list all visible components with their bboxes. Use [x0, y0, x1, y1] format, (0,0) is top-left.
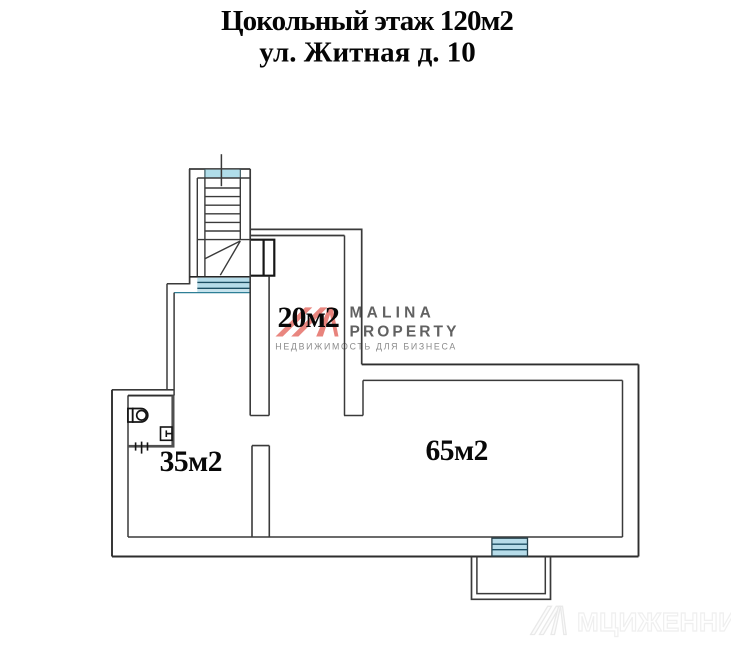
- svg-text:65м2: 65м2: [426, 435, 488, 467]
- svg-text:ул. Житная д. 10: ул. Житная д. 10: [259, 36, 476, 68]
- svg-text:20м2: 20м2: [277, 301, 338, 334]
- svg-text:PROPERTY: PROPERTY: [350, 324, 460, 341]
- svg-text:НЕДВИЖИМОСТЬ ДЛЯ БИЗНЕСА: НЕДВИЖИМОСТЬ ДЛЯ БИЗНЕСА: [275, 341, 457, 351]
- svg-text:35м2: 35м2: [160, 446, 222, 478]
- svg-text:МЦИЖЕННИ: МЦИЖЕННИ: [577, 607, 731, 637]
- svg-text:Цокольный этаж 120м2: Цокольный этаж 120м2: [221, 5, 513, 37]
